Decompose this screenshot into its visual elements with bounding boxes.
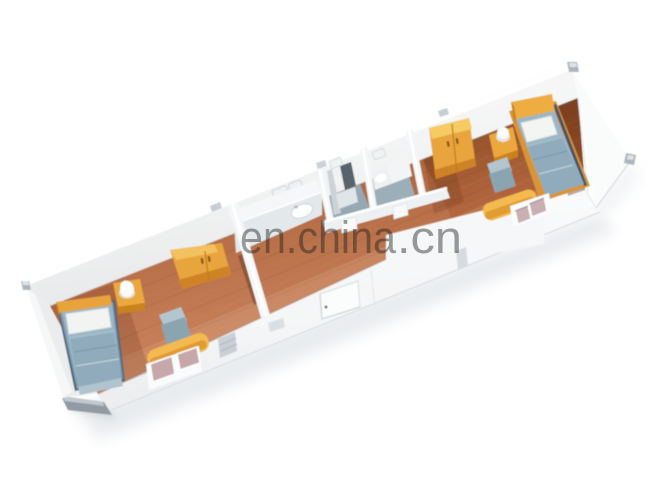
svg-text:.cn: .cn bbox=[397, 212, 462, 263]
svg-text:en.china: en.china bbox=[240, 212, 397, 263]
